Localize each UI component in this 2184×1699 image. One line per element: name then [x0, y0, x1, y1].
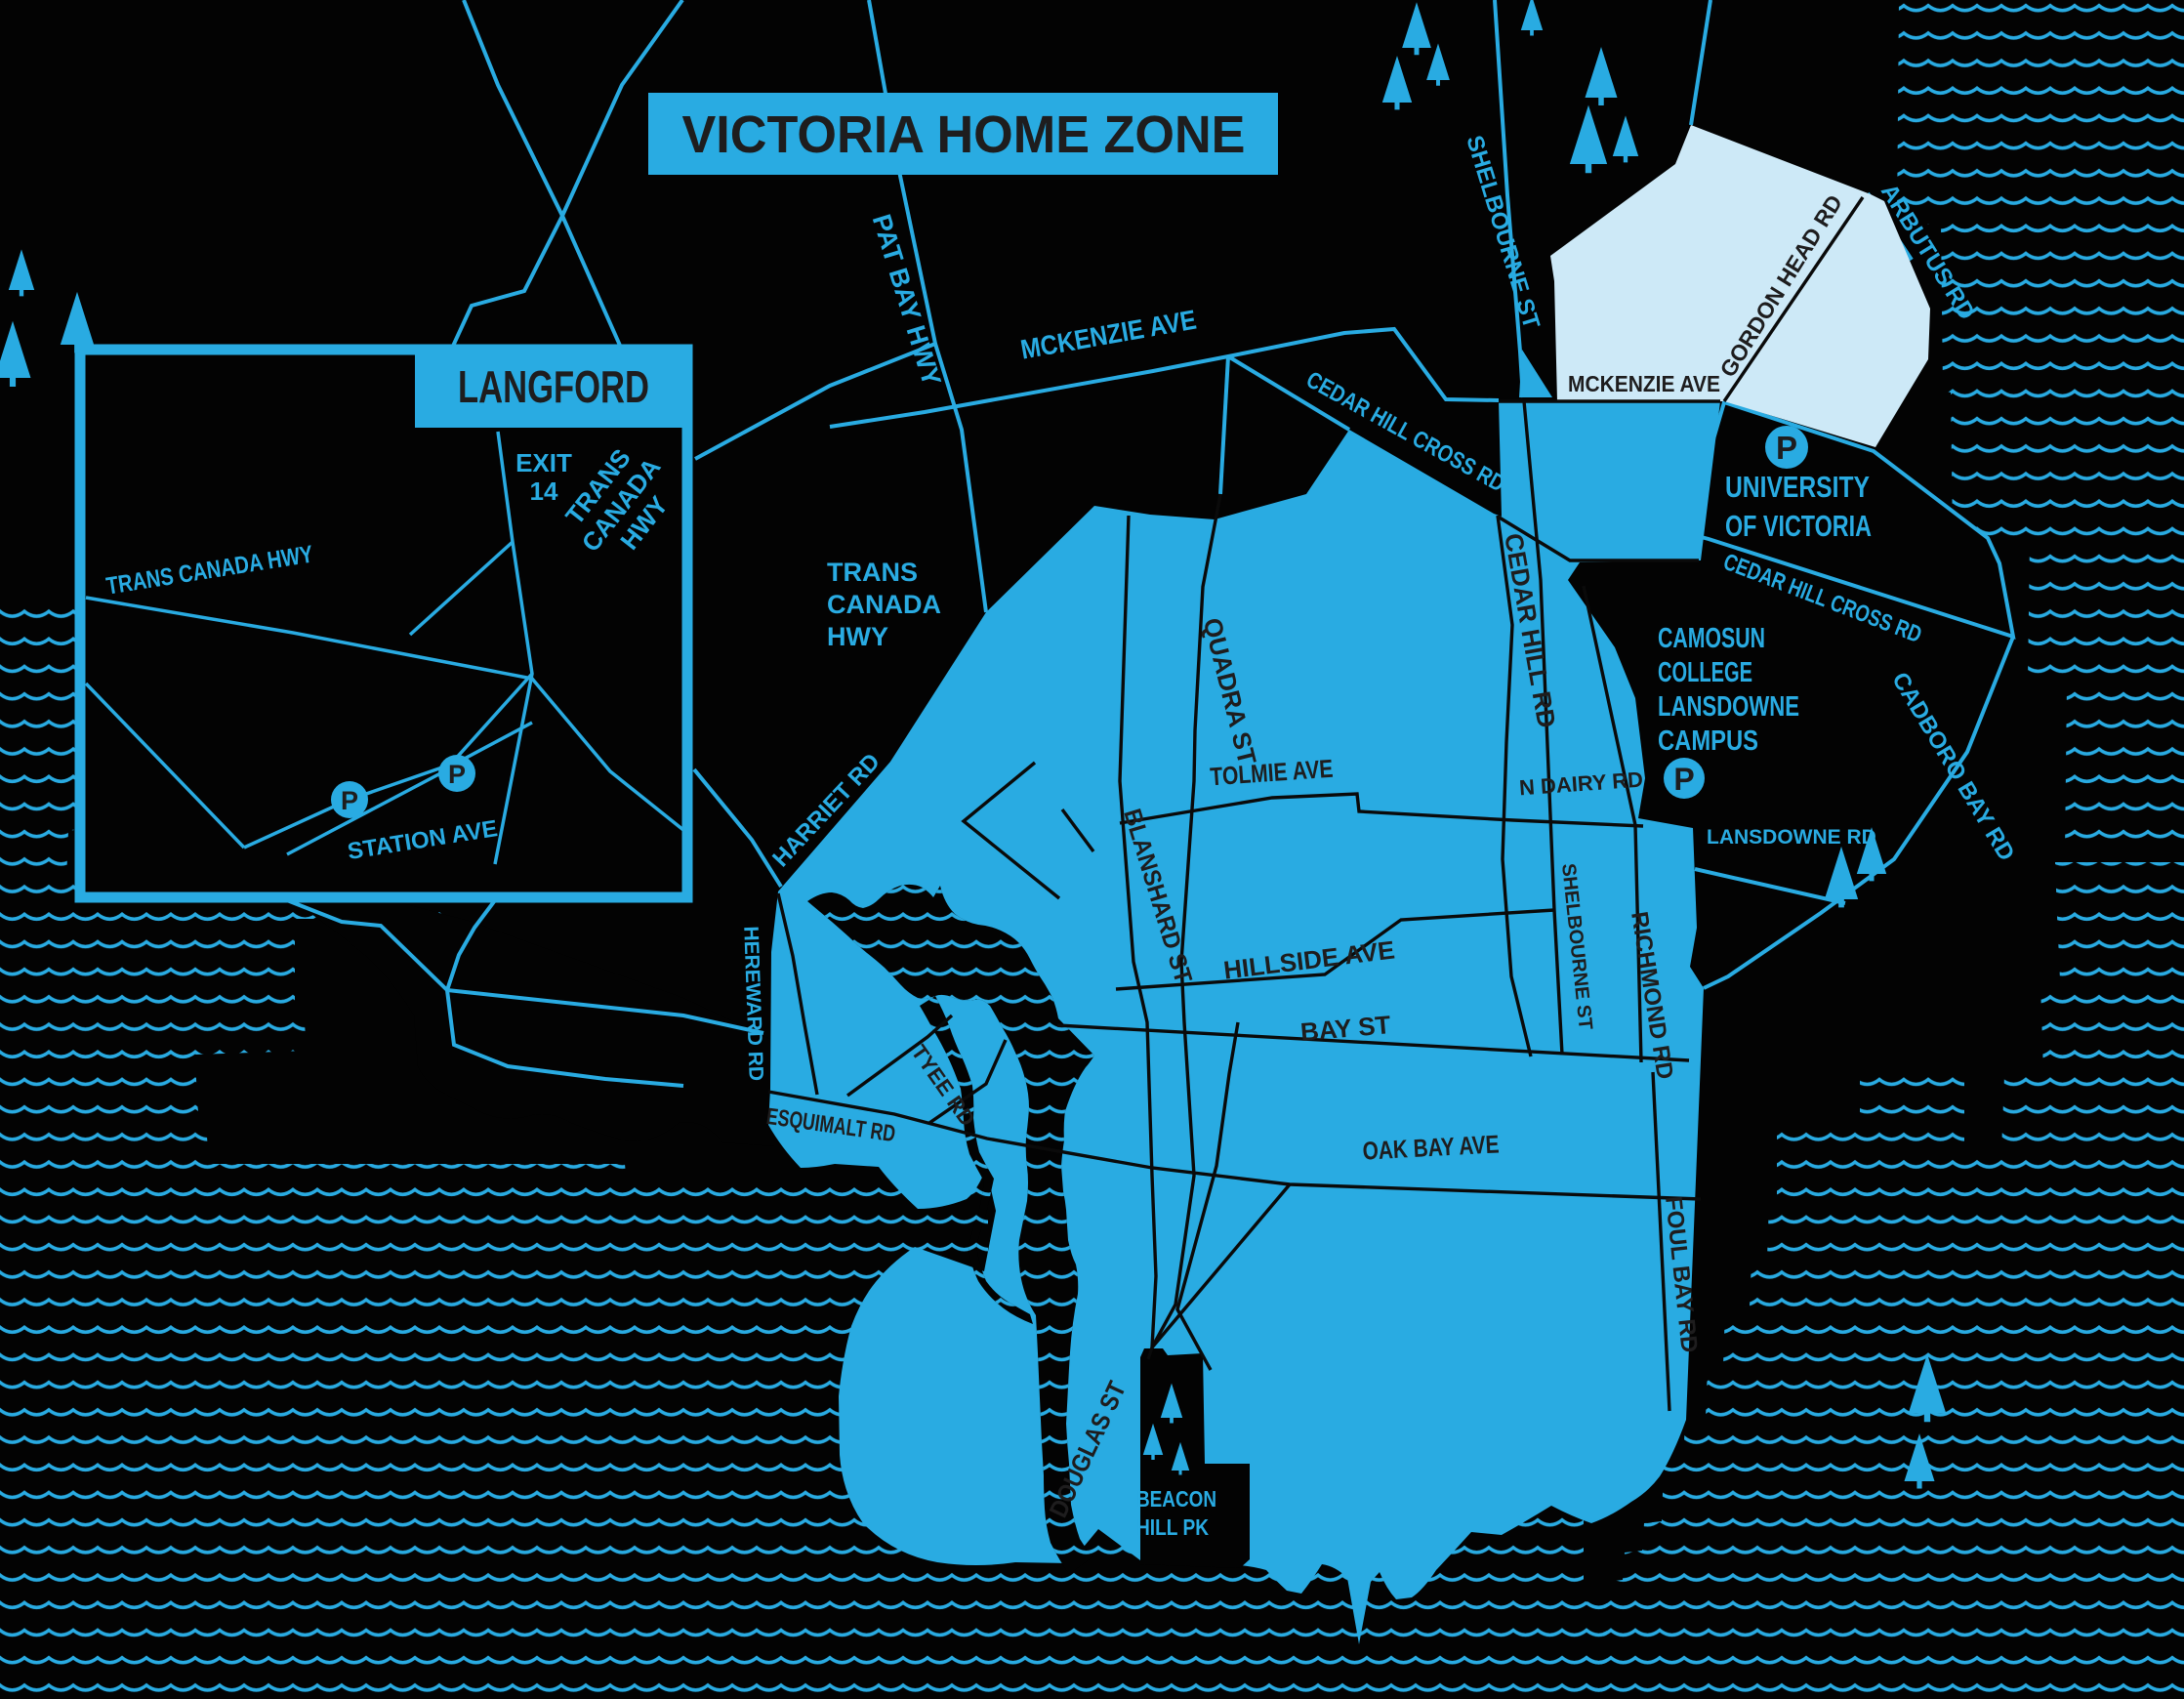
svg-text:TRANS: TRANS [827, 558, 918, 587]
svg-text:P: P [341, 786, 358, 815]
svg-text:VICTORIA HOME ZONE: VICTORIA HOME ZONE [682, 105, 1246, 164]
svg-text:UNIVERSITY: UNIVERSITY [1725, 470, 1870, 504]
svg-text:HWY: HWY [827, 622, 888, 651]
svg-text:P: P [1673, 762, 1694, 797]
svg-text:MCKENZIE AVE: MCKENZIE AVE [1568, 371, 1720, 396]
svg-text:14: 14 [530, 477, 558, 506]
svg-text:P: P [1776, 430, 1797, 466]
svg-text:CAMOSUN: CAMOSUN [1658, 623, 1765, 654]
svg-text:EXIT: EXIT [515, 448, 572, 477]
svg-text:LANGFORD: LANGFORD [458, 361, 649, 412]
svg-text:LANSDOWNE RD: LANSDOWNE RD [1707, 826, 1876, 849]
svg-text:LANSDOWNE: LANSDOWNE [1658, 691, 1799, 723]
svg-text:BEACON: BEACON [1136, 1486, 1216, 1512]
svg-text:COLLEGE: COLLEGE [1658, 657, 1752, 688]
svg-text:CAMPUS: CAMPUS [1658, 725, 1758, 757]
svg-text:OF VICTORIA: OF VICTORIA [1725, 509, 1872, 543]
svg-text:P: P [448, 760, 466, 789]
svg-text:HILL PK: HILL PK [1136, 1514, 1209, 1540]
svg-text:CANADA: CANADA [827, 590, 941, 619]
